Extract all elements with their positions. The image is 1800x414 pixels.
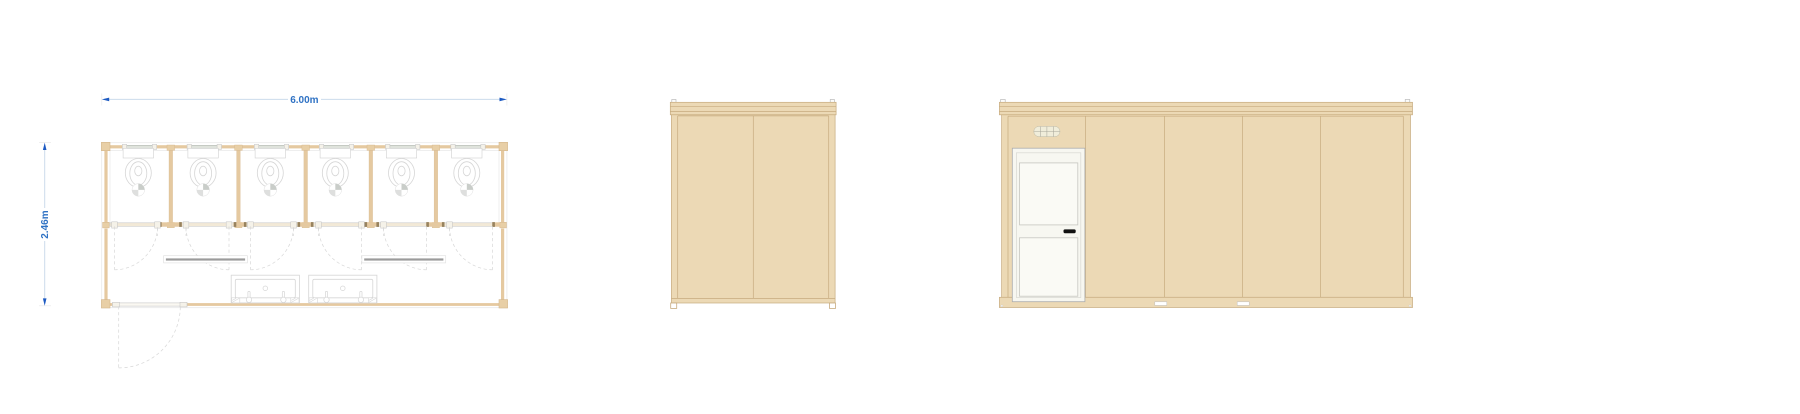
svg-text:6.00m: 6.00m — [290, 95, 318, 106]
svg-text:2.46m: 2.46m — [40, 210, 51, 238]
